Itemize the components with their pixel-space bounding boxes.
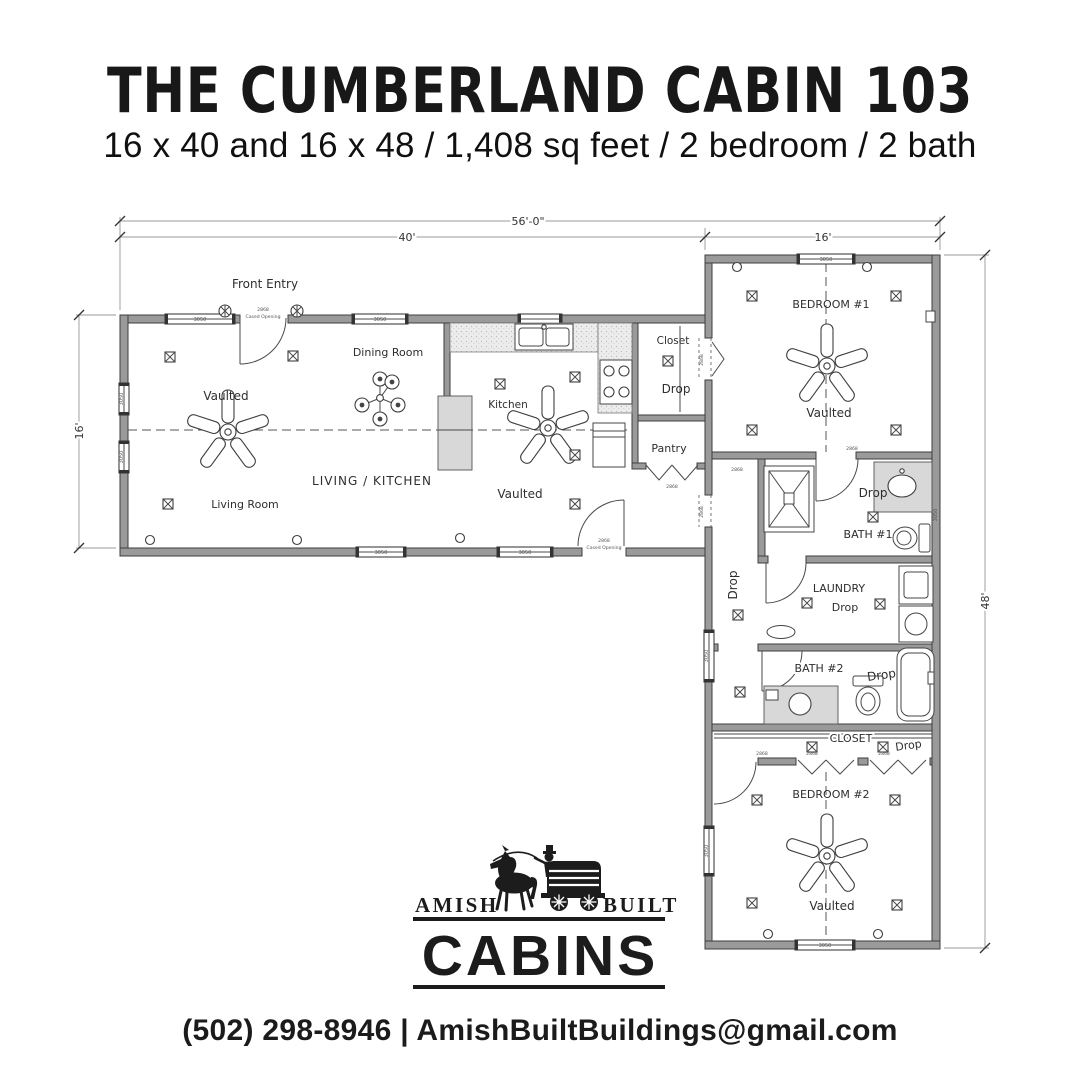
window-callout: 3050 <box>704 845 710 858</box>
room-labels: Front Entry 2868 Cased Opening Dining Ro… <box>203 277 922 913</box>
bath1-door-arc <box>816 459 858 501</box>
door-callout: 2868 <box>846 446 858 452</box>
note-vaulted: Vaulted <box>203 389 248 403</box>
dimension-right-wing-length: 48' <box>979 592 992 609</box>
pantry-bifold-door <box>672 465 698 480</box>
bedroom2-door-arc <box>714 762 756 804</box>
cased-opening-label: Cased Opening <box>246 314 281 320</box>
window-callout: 3050 <box>119 451 125 464</box>
window-callout: 3050 <box>519 550 532 556</box>
closet-bifold-door <box>798 760 826 774</box>
note-drop: Drop <box>895 737 923 754</box>
dimension-right-wing-width: 16' <box>814 231 831 244</box>
room-label-living-kitchen: LIVING / KITCHEN <box>312 474 432 488</box>
room-label-bath-1: BATH #1 <box>844 528 893 541</box>
smoke-detector-icon <box>291 305 303 317</box>
room-label-bedroom-2: BEDROOM #2 <box>792 788 869 801</box>
contact-line: (502) 298-8946 | AmishBuiltBuildings@gma… <box>0 1014 1080 1048</box>
stove <box>600 360 632 404</box>
room-label-kitchen: Kitchen <box>488 399 527 411</box>
note-drop: Drop <box>662 382 691 396</box>
note-drop: Drop <box>866 666 897 684</box>
window-callout: 3050 <box>704 650 710 663</box>
dimension-overall-width: 56'-0" <box>511 215 544 228</box>
room-label-bedroom-1: BEDROOM #1 <box>792 298 869 311</box>
room-label-laundry: LAUNDRY <box>813 582 866 595</box>
window-callout: 3050 <box>119 393 125 406</box>
bathtub <box>897 648 934 721</box>
wall-fixture <box>926 311 935 322</box>
room-label-closet-2: CLOSET <box>830 732 873 745</box>
window-callout: 3050 <box>375 550 388 556</box>
window-callout: 3050 <box>819 943 832 949</box>
room-label-dining-room: Dining Room <box>353 346 423 359</box>
closet-bifold-door <box>898 760 926 774</box>
centerlines <box>128 263 826 940</box>
room-label-living-room: Living Room <box>211 498 279 511</box>
pantry-bifold-door <box>646 465 672 480</box>
door-callout: 2868 <box>699 354 705 366</box>
ceiling-fan-icon <box>785 324 869 404</box>
dimension-left-wing-depth: 16' <box>73 422 86 439</box>
room-label-pantry: Pantry <box>651 442 687 455</box>
logo-rule-top <box>413 917 665 921</box>
note-vaulted: Vaulted <box>806 406 851 420</box>
laundry-sink <box>767 626 795 639</box>
note-drop: Drop <box>859 486 888 500</box>
door-callout: 2868 <box>699 506 705 518</box>
bath1-toilet <box>893 524 930 552</box>
door-callout: 2868 <box>257 307 269 313</box>
dimension-left-wing-width: 40' <box>398 231 415 244</box>
window-callout: 3050 <box>194 317 207 323</box>
room-label-front-entry: Front Entry <box>232 277 298 291</box>
logo-built: BUILT <box>603 893 679 917</box>
washer <box>899 566 933 604</box>
amish-built-cabins-logo: AMISH BUILT <box>397 845 683 1005</box>
room-label-bath-2: BATH #2 <box>795 662 844 675</box>
note-vaulted: Vaulted <box>809 899 854 913</box>
door-callout: 2868 <box>598 538 610 544</box>
cased-opening-arrow <box>712 342 724 376</box>
laundry-door-arc <box>766 563 806 603</box>
kitchen-sink <box>515 324 573 350</box>
window-callout: 3050 <box>374 317 387 323</box>
bath2-vanity <box>764 686 838 724</box>
smoke-detector-icon <box>219 305 231 317</box>
window-callout: 3050 <box>820 257 833 263</box>
door-callout: 2868 <box>666 484 678 490</box>
dishwasher <box>593 423 625 467</box>
front-door-arc <box>240 318 286 364</box>
ceiling-fan-icon <box>785 814 869 894</box>
closet-bifold-door <box>826 760 854 774</box>
logo-cabins: CABINS <box>422 924 659 988</box>
door-callout: 2868 <box>756 751 768 757</box>
note-drop: Drop <box>832 601 858 614</box>
horse-and-wagon-icon <box>490 845 605 911</box>
logo-rule-bottom <box>413 985 665 989</box>
closet-bifold-door <box>870 760 898 774</box>
cased-opening-label: Cased Opening <box>587 545 622 551</box>
page: THE CUMBERLAND CABIN 103 16 x 40 and 16 … <box>0 0 1080 1080</box>
note-drop: Drop <box>726 571 740 600</box>
window-symbol <box>518 314 562 324</box>
refrigerator <box>438 396 472 470</box>
shower <box>764 466 814 532</box>
room-label-closet: Closet <box>657 335 690 347</box>
bath-fixtures <box>714 462 934 738</box>
door-callout: 2868 <box>731 467 743 473</box>
window-callout: 3050 <box>933 509 939 522</box>
logo-amish: AMISH <box>415 893 499 917</box>
note-vaulted: Vaulted <box>497 487 542 501</box>
dryer <box>899 606 933 642</box>
dining-light-icon <box>355 372 405 426</box>
